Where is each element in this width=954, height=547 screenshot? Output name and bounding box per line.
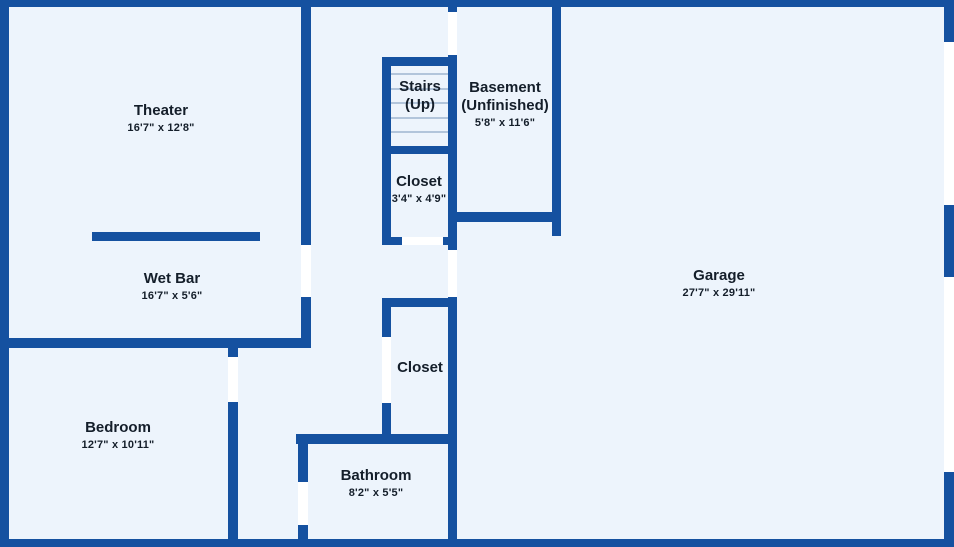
room-label-wet-bar: Wet Bar 16'7" x 5'6": [142, 270, 203, 305]
room-name-closet-upper: Closet: [392, 173, 447, 191]
door-opening-closet-lower: [382, 337, 391, 403]
door-opening-basement: [448, 12, 457, 55]
wall-wet-bar-bottom: [0, 338, 311, 348]
wall-stairs-top: [382, 57, 457, 66]
room-label-closet-lower: Closet: [397, 359, 443, 377]
door-opening-closet-upper: [402, 237, 443, 245]
room-label-theater: Theater 16'7" x 12'8": [127, 102, 194, 137]
room-name-wet-bar: Wet Bar: [142, 270, 203, 288]
room-dims-bathroom: 8'2" x 5'5": [341, 485, 412, 502]
room-name-bathroom: Bathroom: [341, 467, 412, 485]
room-label-bedroom: Bedroom 12'7" x 10'11": [82, 419, 155, 454]
room-label-stairs: Stairs (Up): [399, 78, 441, 114]
room-dims-garage: 27'7" x 29'11": [683, 285, 756, 302]
room-dims-bedroom: 12'7" x 10'11": [82, 437, 155, 454]
wall-basement-right: [552, 0, 561, 236]
room-label-bathroom: Bathroom 8'2" x 5'5": [341, 467, 412, 502]
stair-tread: [391, 131, 448, 133]
wall-outer-bottom: [0, 539, 954, 547]
stair-tread: [391, 117, 448, 119]
room-name-stairs: Stairs (Up): [399, 78, 441, 114]
wall-bathroom-top: [296, 434, 457, 444]
wall-basement-bottom: [448, 212, 561, 222]
room-name-bedroom: Bedroom: [82, 419, 155, 437]
room-name-closet-lower: Closet: [397, 359, 443, 377]
door-opening-hall-garage: [448, 250, 457, 297]
garage-door-opening-upper: [944, 42, 954, 205]
room-label-garage: Garage 27'7" x 29'11": [683, 267, 756, 302]
garage-door-opening-lower: [944, 277, 954, 472]
room-label-basement: Basement (Unfinished) 5'8" x 11'6": [461, 79, 549, 132]
wall-closet-lower-top: [382, 298, 457, 307]
wall-wet-bar-counter: [92, 232, 260, 241]
floor-plan: Theater 16'7" x 12'8" Wet Bar 16'7" x 5'…: [0, 0, 954, 547]
room-name-garage: Garage: [683, 267, 756, 285]
room-label-closet-upper: Closet 3'4" x 4'9": [392, 173, 447, 208]
wall-outer-top: [0, 0, 954, 7]
room-dims-wet-bar: 16'7" x 5'6": [142, 288, 203, 305]
door-opening-bedroom: [228, 357, 238, 402]
room-dims-theater: 16'7" x 12'8": [127, 120, 194, 137]
door-opening-bathroom: [298, 482, 308, 525]
stair-tread: [391, 73, 448, 75]
wall-outer-left: [0, 0, 9, 547]
room-name-basement: Basement (Unfinished): [461, 79, 549, 115]
door-opening-theater: [301, 245, 311, 297]
room-dims-closet-upper: 3'4" x 4'9": [392, 191, 447, 208]
wall-stairs-bottom: [382, 146, 457, 154]
room-name-theater: Theater: [127, 102, 194, 120]
room-dims-basement: 5'8" x 11'6": [461, 115, 549, 132]
